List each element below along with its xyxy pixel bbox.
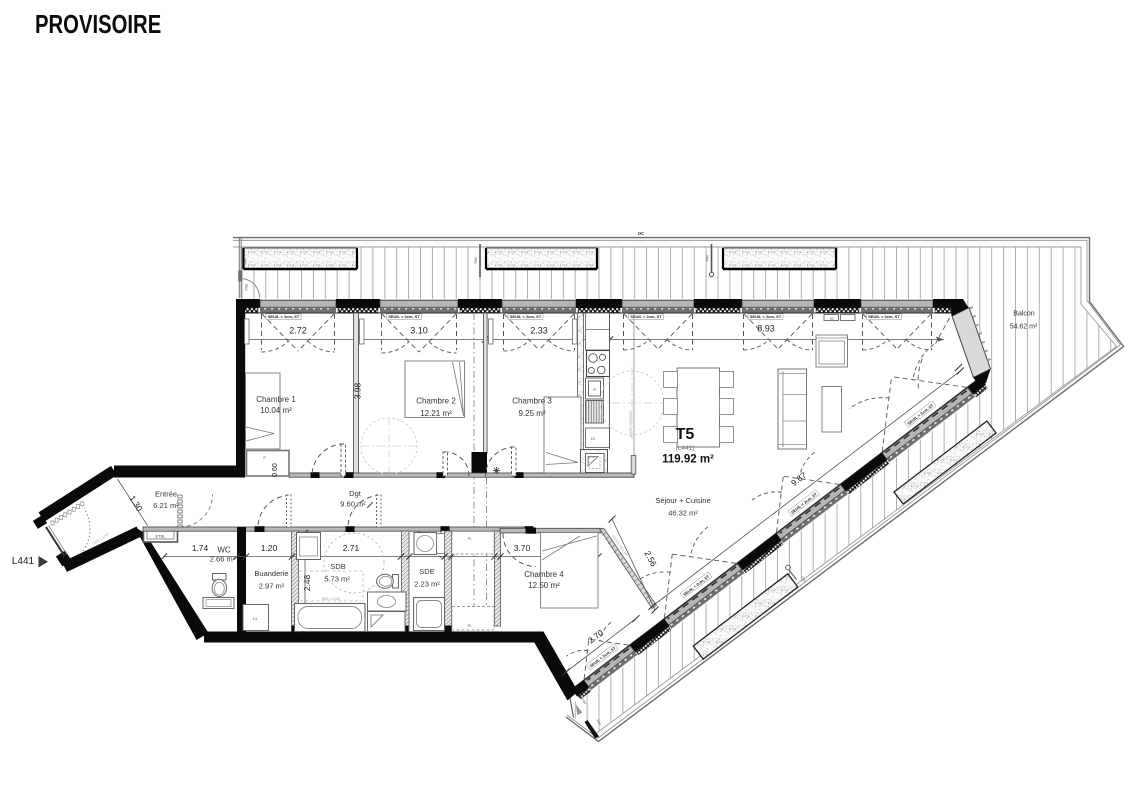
svg-text:PAE: PAE xyxy=(245,283,249,291)
svg-text:Séjour + Cuisine: Séjour + Cuisine xyxy=(655,496,710,505)
svg-text:WC: WC xyxy=(217,546,231,555)
svg-text:1.20: 1.20 xyxy=(261,543,278,553)
svg-text:PAV: PAV xyxy=(474,256,478,263)
svg-text:T5: T5 xyxy=(676,426,695,443)
svg-text:RD: RD xyxy=(830,317,835,321)
svg-text:L441: L441 xyxy=(12,556,35,567)
svg-text:ETEL: ETEL xyxy=(155,534,166,539)
svg-text:3.10: 3.10 xyxy=(410,326,428,336)
svg-text:P.: P. xyxy=(263,455,266,460)
svg-text:12.21 m²: 12.21 m² xyxy=(420,409,452,418)
svg-text:LV: LV xyxy=(591,436,596,441)
svg-text:PAV: PAV xyxy=(580,698,587,706)
svg-text:Balcon: Balcon xyxy=(1013,311,1035,318)
svg-text:2.66 m²: 2.66 m² xyxy=(210,555,236,564)
svg-text:2.48: 2.48 xyxy=(302,574,312,591)
svg-text:(L441): (L441) xyxy=(676,445,695,452)
svg-text:Entrée: Entrée xyxy=(155,490,177,499)
svg-text:6.21 m²: 6.21 m² xyxy=(153,501,179,510)
svg-text:Chambre 1: Chambre 1 xyxy=(256,395,296,404)
svg-text:Dgt: Dgt xyxy=(349,489,362,498)
svg-text:1.74: 1.74 xyxy=(192,543,209,553)
svg-text:Pl.: Pl. xyxy=(468,536,473,541)
svg-text:3.98: 3.98 xyxy=(353,382,363,399)
svg-text:2.23 m²: 2.23 m² xyxy=(414,580,440,589)
svg-text:SEUIL < 2cm, ST: SEUIL < 2cm, ST xyxy=(510,314,542,319)
svg-text:46.32 m²: 46.32 m² xyxy=(668,509,698,518)
svg-text:2.72: 2.72 xyxy=(289,326,307,336)
svg-text:LL: LL xyxy=(253,616,258,621)
svg-text:SDB: SDB xyxy=(330,562,345,571)
svg-text:SEUIL < 2cm, ST: SEUIL < 2cm, ST xyxy=(388,314,420,319)
svg-text:SEUIL < 2cm, ST: SEUIL < 2cm, ST xyxy=(630,314,662,319)
svg-text:SDE: SDE xyxy=(419,567,434,576)
svg-text:Pl.: Pl. xyxy=(468,623,473,628)
svg-text:SEUIL < 2cm, ST: SEUIL < 2cm, ST xyxy=(868,314,900,319)
svg-text:PAV: PAV xyxy=(595,719,602,727)
svg-text:800 x 1300: 800 x 1300 xyxy=(322,597,339,601)
svg-text:3.70: 3.70 xyxy=(514,543,531,553)
svg-text:SEUIL < 2cm, ST: SEUIL < 2cm, ST xyxy=(268,314,300,319)
svg-text:0.60: 0.60 xyxy=(272,463,279,477)
svg-text:OC: OC xyxy=(638,231,644,236)
svg-text:Buanderie: Buanderie xyxy=(254,569,288,578)
svg-text:119.92 m²: 119.92 m² xyxy=(662,454,714,466)
svg-text:Chambre 2: Chambre 2 xyxy=(416,397,456,406)
svg-text:10.04 m²: 10.04 m² xyxy=(260,406,292,415)
svg-text:PAV: PAV xyxy=(706,254,710,261)
svg-text:9.25 m²: 9.25 m² xyxy=(518,409,545,418)
svg-text:12.50 m²: 12.50 m² xyxy=(528,581,560,590)
svg-text:8.93: 8.93 xyxy=(757,324,775,334)
svg-text:54.62 m²: 54.62 m² xyxy=(1010,324,1038,331)
svg-text:2.33: 2.33 xyxy=(530,326,548,336)
svg-text:PAV: PAV xyxy=(244,257,248,264)
svg-text:SEUIL < 2cm, ST: SEUIL < 2cm, ST xyxy=(750,314,782,319)
svg-text:Chambre 3: Chambre 3 xyxy=(512,397,552,406)
svg-text:Chambre 4: Chambre 4 xyxy=(524,570,564,579)
svg-text:2.71: 2.71 xyxy=(343,543,360,553)
svg-text:2.97 m²: 2.97 m² xyxy=(259,582,285,591)
